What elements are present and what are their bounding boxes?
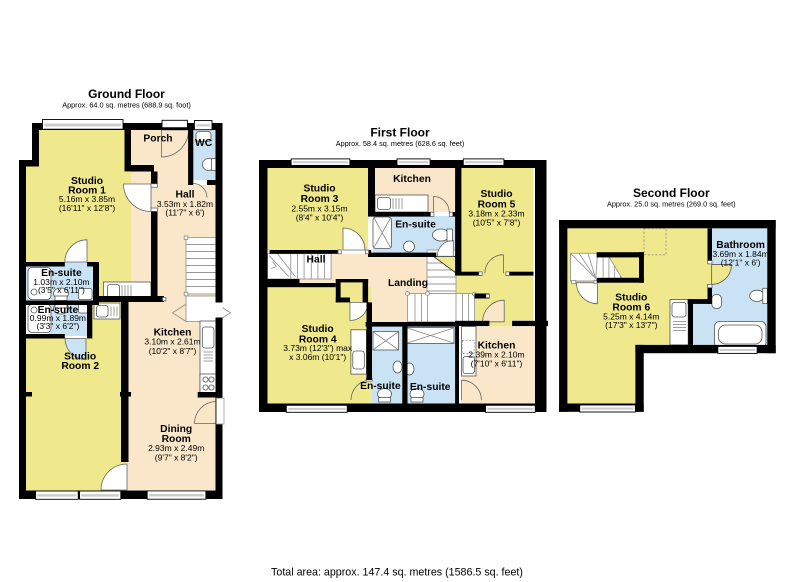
svg-text:(17'3" x 13'7"): (17'3" x 13'7"): [605, 320, 657, 330]
svg-text:Ground Floor: Ground Floor: [88, 87, 165, 101]
svg-text:Approx. 58.4 sq. metres (628.6: Approx. 58.4 sq. metres (628.6 sq. feet): [336, 139, 465, 148]
svg-text:Approx. 25.0 sq. metres (269.0: Approx. 25.0 sq. metres (269.0 sq. feet): [607, 200, 736, 209]
svg-text:En-suite: En-suite: [360, 381, 401, 392]
svg-text:Hall: Hall: [307, 255, 326, 266]
svg-text:Porch: Porch: [143, 134, 172, 145]
svg-text:WC: WC: [195, 138, 213, 149]
svg-text:Total area: approx. 147.4 sq.: Total area: approx. 147.4 sq. metres (15…: [271, 567, 523, 579]
svg-text:3.10m x 2.61m: 3.10m x 2.61m: [144, 337, 200, 347]
svg-text:Studio: Studio: [303, 184, 335, 195]
svg-text:Kitchen: Kitchen: [393, 174, 431, 185]
svg-text:(8'4" x 10'4"): (8'4" x 10'4"): [296, 213, 344, 223]
svg-text:(10'5" x 7'8"): (10'5" x 7'8"): [473, 218, 521, 228]
svg-text:En-suite: En-suite: [410, 382, 451, 393]
svg-text:2.93m x 2.49m: 2.93m x 2.49m: [148, 443, 204, 453]
svg-text:Approx. 64.0 sq. metres (688.9: Approx. 64.0 sq. metres (688.9 sq. foot): [62, 101, 191, 110]
svg-text:(3'5" x 6'11"): (3'5" x 6'11"): [38, 285, 85, 295]
svg-text:Room 2: Room 2: [61, 361, 99, 372]
svg-text:(7'10" x 6'11"): (7'10" x 6'11"): [471, 359, 523, 369]
svg-text:(10'2" x 8'7"): (10'2" x 8'7"): [149, 346, 197, 356]
svg-text:(11'7" x 6'): (11'7" x 6'): [165, 208, 204, 218]
svg-text:En-suite: En-suite: [395, 220, 436, 231]
svg-text:Second Floor: Second Floor: [633, 186, 710, 200]
svg-text:(9'7" x 8'2"): (9'7" x 8'2"): [155, 453, 198, 463]
svg-text:(16'11" x 12'8"): (16'11" x 12'8"): [59, 203, 116, 213]
svg-text:First Floor: First Floor: [370, 125, 430, 139]
svg-text:(3'3" x 6'2"): (3'3" x 6'2"): [36, 321, 79, 331]
svg-text:(12'1" x 6'): (12'1" x 6'): [721, 258, 761, 268]
svg-text:Landing: Landing: [388, 278, 428, 289]
svg-text:x 3.06m (10'1"): x 3.06m (10'1"): [289, 352, 346, 362]
